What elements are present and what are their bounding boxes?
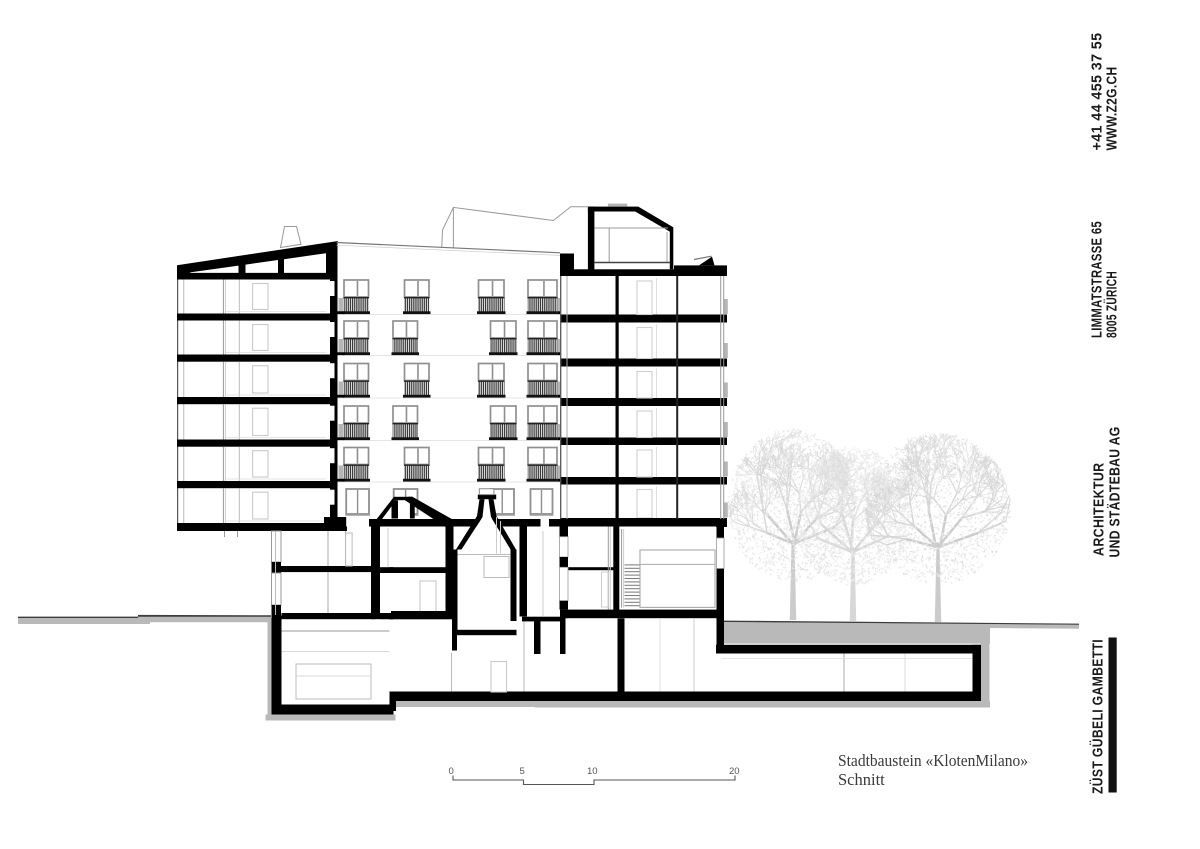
svg-text:Stadtbaustein «KlotenMilano»: Stadtbaustein «KlotenMilano» [838,751,1028,770]
svg-text:WWW.Z2G.CH: WWW.Z2G.CH [1105,67,1121,151]
svg-text:ARCHITEKTUR: ARCHITEKTUR [1092,462,1108,556]
svg-text:UND STÄDTEBAU AG: UND STÄDTEBAU AG [1107,427,1124,558]
svg-text:+41 44 455 37 55: +41 44 455 37 55 [1090,33,1106,151]
svg-text:8005 ZÜRICH: 8005 ZÜRICH [1104,271,1121,338]
svg-text:0: 0 [449,766,454,777]
svg-text:20: 20 [729,766,740,777]
svg-text:5: 5 [520,766,525,777]
svg-text:ZÜST GÜBELI GAMBETTI: ZÜST GÜBELI GAMBETTI [1090,639,1107,794]
svg-text:10: 10 [587,766,598,777]
svg-text:Schnitt: Schnitt [838,770,885,789]
svg-text:LIMMATSTRASSE 65: LIMMATSTRASSE 65 [1090,221,1106,338]
